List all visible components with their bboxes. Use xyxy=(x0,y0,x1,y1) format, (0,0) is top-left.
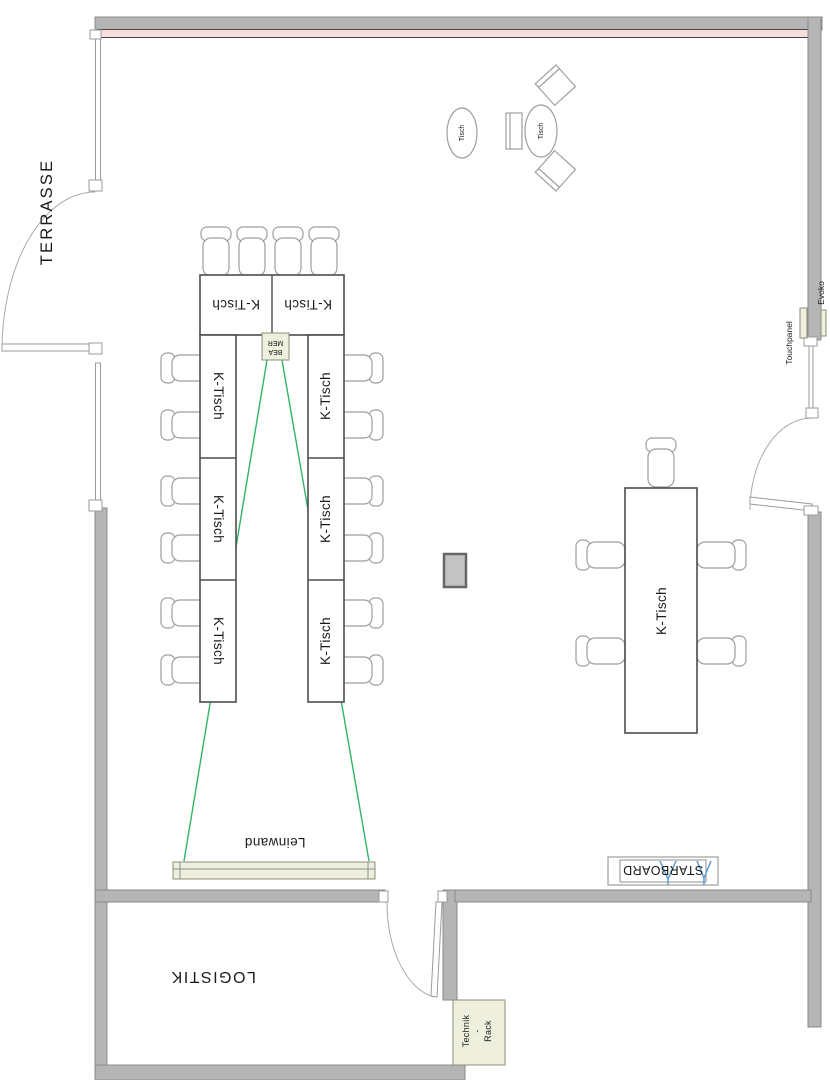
chair xyxy=(273,227,303,276)
technik-rack: Technik - Rack xyxy=(453,1000,505,1065)
door-jamb xyxy=(379,891,388,902)
k-tisch-label: K-Tisch xyxy=(654,587,669,635)
tisch-label: Tisch xyxy=(459,125,466,142)
bottom-wall xyxy=(95,1065,465,1080)
touchpanel-label: Touchpanel xyxy=(784,321,794,365)
chair xyxy=(576,540,625,570)
door-jamb xyxy=(438,891,447,902)
chair xyxy=(697,636,746,666)
door-jamb xyxy=(89,343,102,354)
logistics-top-wall xyxy=(95,890,385,902)
window-left-upper xyxy=(96,38,101,185)
k-tisch-label: K-Tisch xyxy=(318,495,333,543)
screen-label: Leinwand xyxy=(245,835,306,850)
touchpanel-device xyxy=(800,308,807,338)
door-jamb xyxy=(804,506,818,515)
pillar-column xyxy=(444,554,466,587)
chair xyxy=(309,227,339,276)
floor-plan: BEA MER Technik - Rack Touchpanel Evoko … xyxy=(0,0,830,1080)
chair xyxy=(697,540,746,570)
beamer-label: MER xyxy=(268,339,284,346)
evoko-label: Evoko xyxy=(816,281,826,305)
chair xyxy=(576,636,625,666)
heater-band xyxy=(97,30,808,38)
technik-rack-label: - xyxy=(472,1029,482,1032)
door-jamb xyxy=(89,180,102,191)
right-wall-lower xyxy=(808,512,821,1027)
top-wall xyxy=(95,17,822,30)
starboard-label: STARBOARD xyxy=(623,863,703,877)
left-wall xyxy=(95,508,107,1080)
chair xyxy=(201,227,231,276)
k-tisch-label: K-Tisch xyxy=(212,297,260,312)
chair xyxy=(646,438,676,487)
evoko-device xyxy=(821,310,826,336)
terrace-label: TERRASSE xyxy=(38,159,56,266)
diamond-chair xyxy=(535,65,575,105)
k-tisch-label: K-Tisch xyxy=(211,372,226,420)
k-tisch-label: K-Tisch xyxy=(318,617,333,665)
k-tisch-label: K-Tisch xyxy=(318,372,333,420)
door-jamb xyxy=(806,408,818,418)
window-right-side-panel xyxy=(809,345,813,415)
mid-wall-pillar xyxy=(443,890,457,1000)
entrance-door-right xyxy=(750,418,812,511)
main-room-bottom-wall xyxy=(455,890,811,902)
k-tisch-label: K-Tisch xyxy=(284,297,332,312)
side-chair xyxy=(506,113,522,149)
logistics-door xyxy=(387,902,442,997)
beamer: BEA MER xyxy=(262,333,289,360)
logistics-label: LOGISTIK xyxy=(170,968,256,985)
tisch-label: Tisch xyxy=(538,123,545,140)
beamer-label: BEA xyxy=(268,348,282,355)
technik-rack-label: Rack xyxy=(483,1020,493,1042)
technik-rack-label: Technik xyxy=(461,1014,471,1047)
screen-leinwand xyxy=(173,862,375,879)
k-tisch-label: K-Tisch xyxy=(211,617,226,665)
chair xyxy=(237,227,267,276)
k-tisch-label: K-Tisch xyxy=(211,495,226,543)
door-jamb xyxy=(89,500,102,511)
door-jamb xyxy=(90,30,101,39)
window-left-lower xyxy=(96,363,101,508)
